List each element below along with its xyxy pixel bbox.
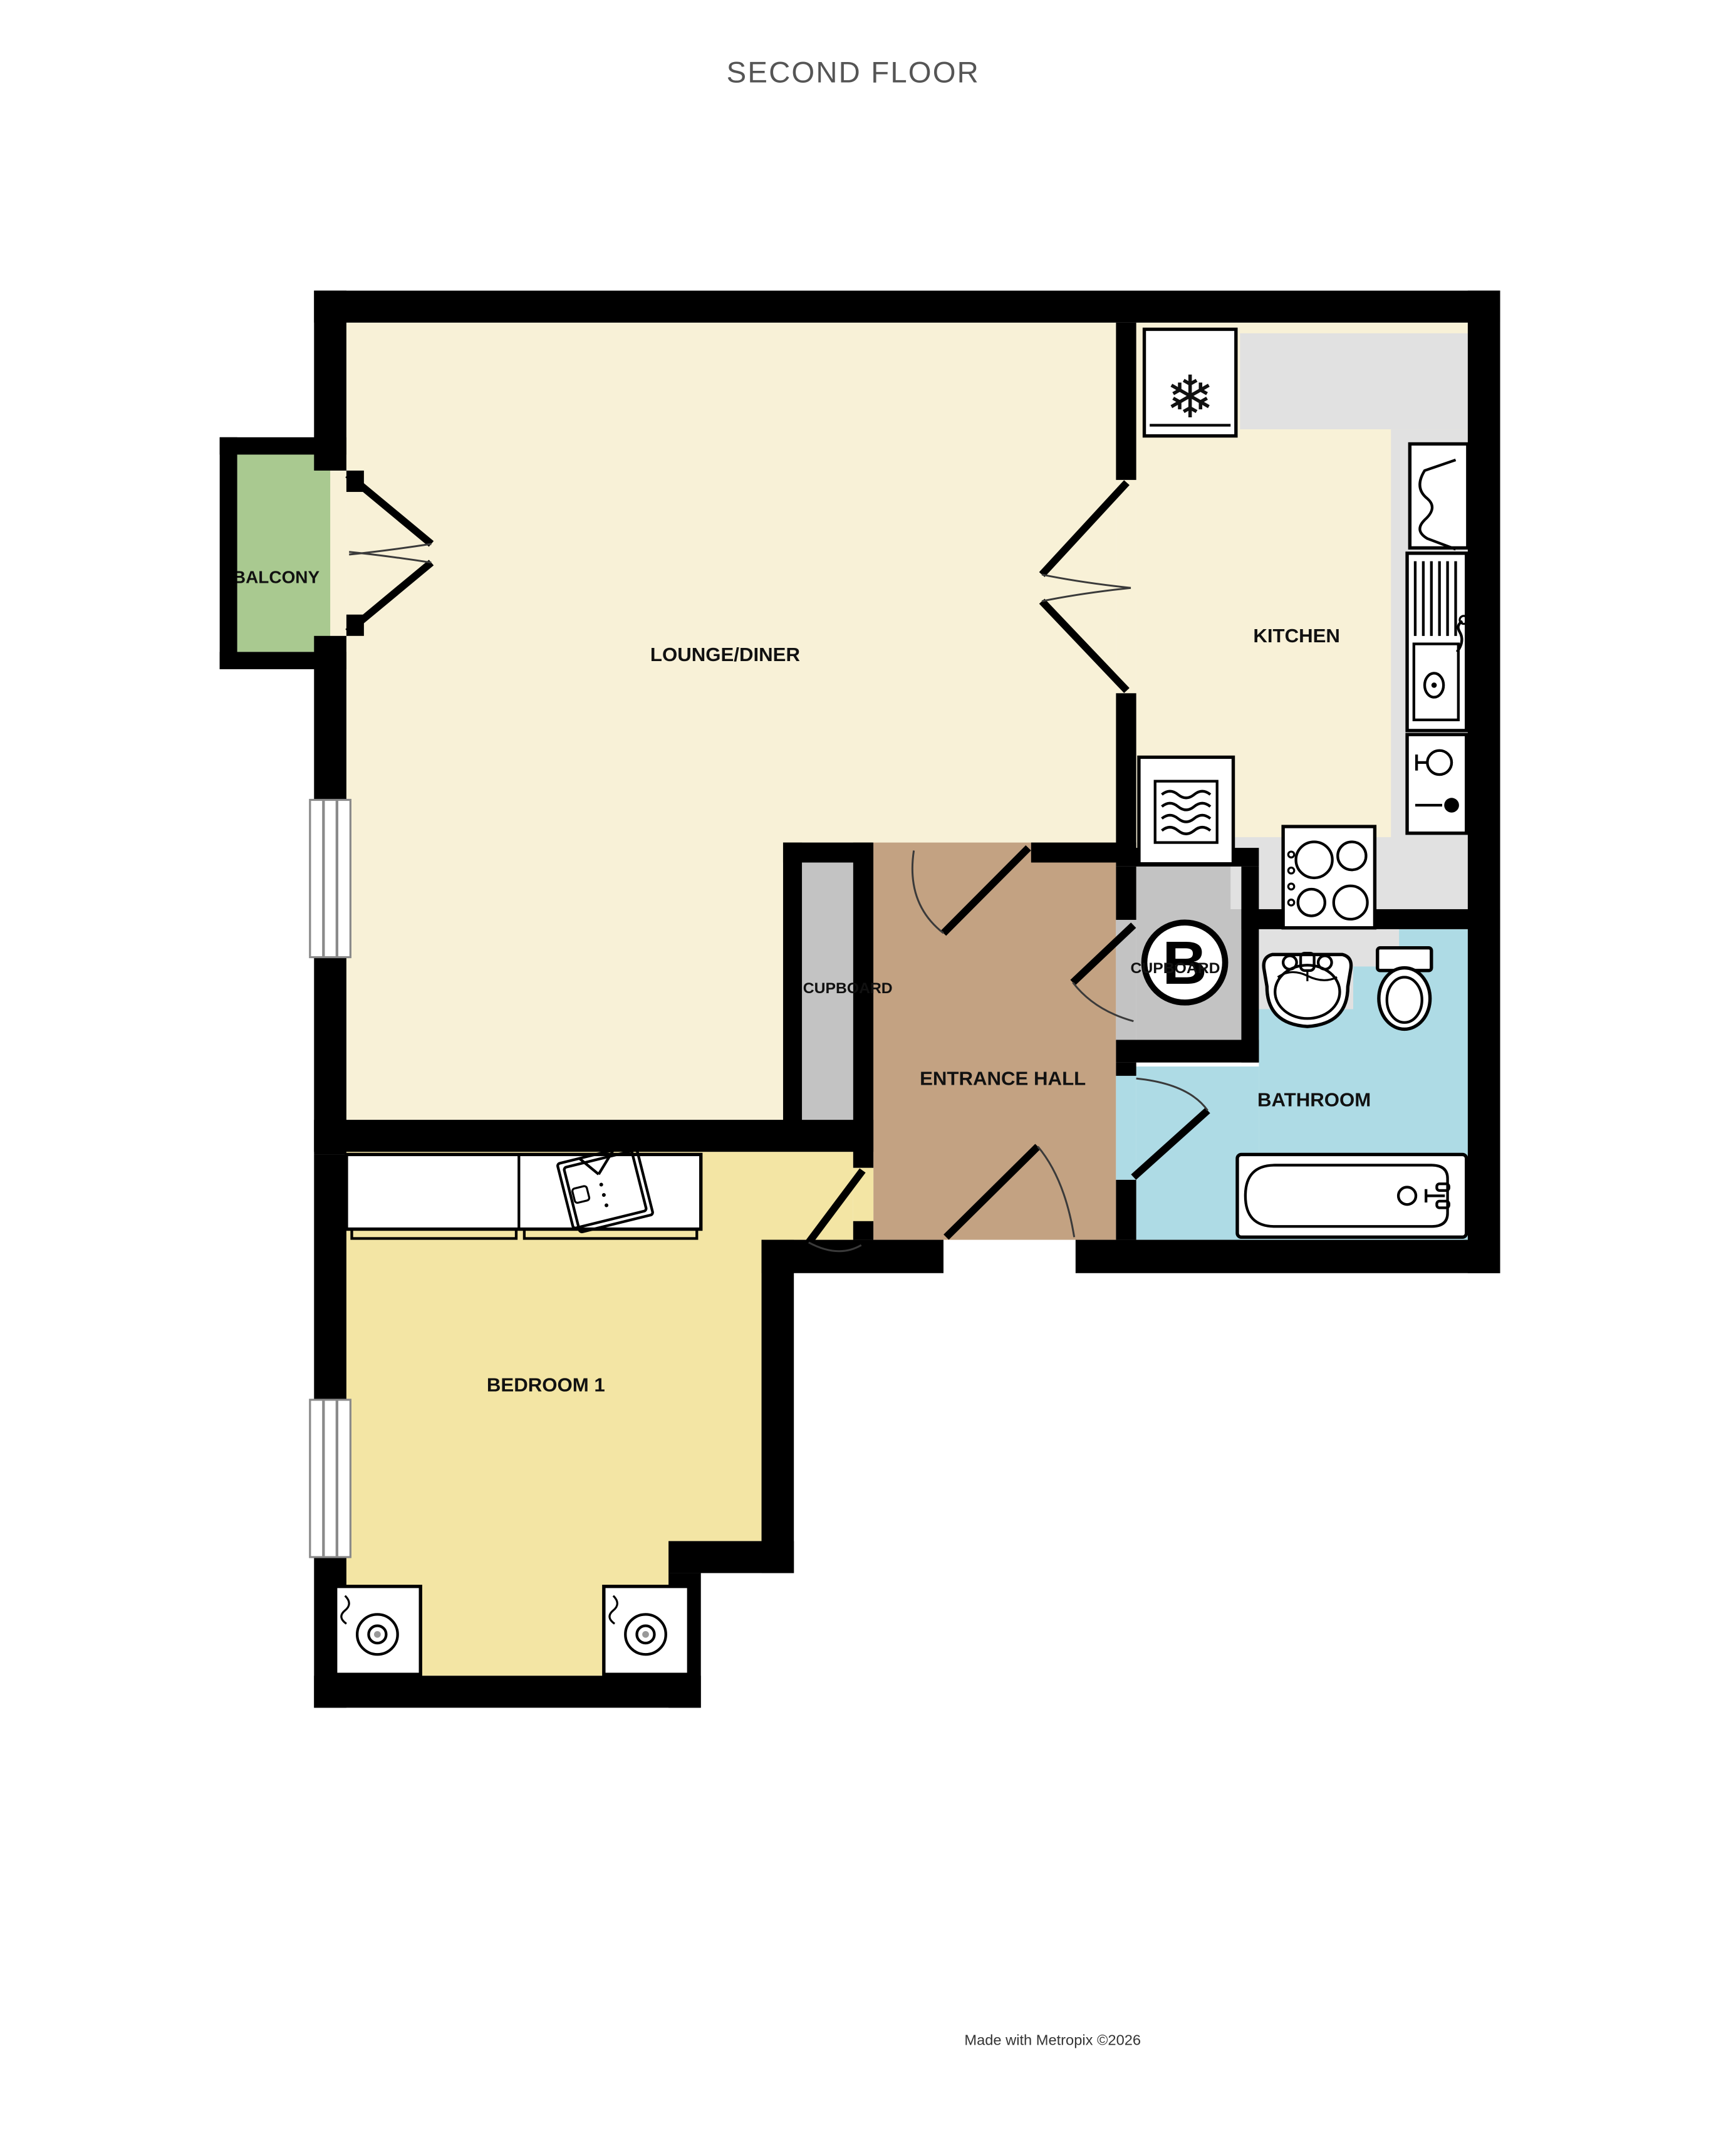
hall-floor bbox=[873, 843, 1116, 1240]
speaker-icon-left bbox=[336, 1587, 421, 1674]
sink-unit bbox=[1407, 553, 1468, 731]
wall-boilercup-right bbox=[1241, 867, 1259, 1063]
basin-icon bbox=[1264, 953, 1351, 1026]
wall-bath-left-a bbox=[1116, 1063, 1136, 1076]
wall-hall-left bbox=[853, 843, 873, 1168]
page-title: SECOND FLOOR bbox=[727, 56, 980, 89]
wall-boilercup-bottom bbox=[1116, 1040, 1259, 1062]
floorplan-page: BALCONY bbox=[0, 0, 1736, 2133]
wall-kitchen-divider-lower bbox=[1116, 693, 1136, 848]
kitchen-label: KITCHEN bbox=[1253, 625, 1340, 647]
cupboard-boiler-label: CUPBOARD bbox=[1131, 960, 1220, 977]
bedroom-label: BEDROOM 1 bbox=[487, 1374, 605, 1396]
wall-top bbox=[314, 291, 1500, 323]
balcony-wall-top bbox=[220, 437, 346, 455]
balcony-wall-left bbox=[220, 437, 237, 669]
lounge-label: LOUNGE/DINER bbox=[650, 644, 800, 665]
lounge-window bbox=[310, 800, 351, 957]
bath-icon bbox=[1237, 1154, 1467, 1237]
bathroom-label: BATHROOM bbox=[1257, 1089, 1371, 1111]
wall-boilercup-left bbox=[1116, 867, 1136, 920]
entrance-hall-label: ENTRANCE HALL bbox=[920, 1068, 1086, 1090]
wall-bottom-left-of-door bbox=[762, 1240, 943, 1273]
wall-bath-left-b bbox=[1116, 1180, 1136, 1240]
wall-right bbox=[1468, 291, 1500, 1273]
hob bbox=[1283, 827, 1375, 928]
wall-bedroom-bottom bbox=[314, 1676, 700, 1708]
wardrobe bbox=[346, 1145, 701, 1239]
wall-cupboard-left bbox=[783, 843, 802, 1139]
credit-text: Made with Metropix ©2026 bbox=[964, 2032, 1141, 2048]
bathroom-door-patch bbox=[1116, 1076, 1136, 1180]
wall-cupboard-icon bbox=[1410, 444, 1468, 549]
wall-kitchen-divider-upper bbox=[1116, 323, 1136, 480]
fridge-freezer: ❄ bbox=[1145, 329, 1236, 435]
wall-hall-left-stub bbox=[853, 1221, 873, 1240]
speaker-icon-right bbox=[604, 1587, 689, 1674]
balcony-wall-bottom bbox=[220, 652, 346, 669]
floorplan-canvas: BALCONY bbox=[0, 0, 1736, 2133]
wall-step-v2 bbox=[762, 1240, 794, 1573]
dishwasher bbox=[1407, 734, 1467, 833]
cupboard-left-label: CUPBOARD bbox=[803, 980, 893, 997]
balcony-floor bbox=[237, 454, 330, 652]
toilet-icon bbox=[1378, 948, 1432, 1030]
kitchen-counter-top bbox=[1240, 333, 1468, 429]
oven bbox=[1139, 757, 1234, 863]
bedroom-window bbox=[310, 1400, 351, 1557]
balcony-label: BALCONY bbox=[233, 568, 320, 587]
snowflake-icon: ❄ bbox=[1165, 364, 1215, 432]
wall-bottom-right-of-door bbox=[1076, 1240, 1500, 1273]
